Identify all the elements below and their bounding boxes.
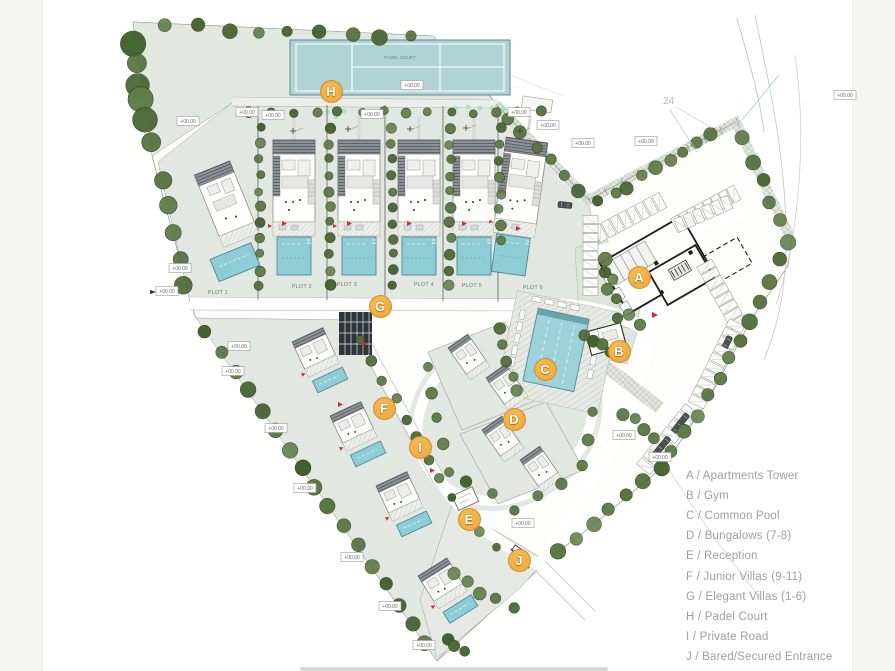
elevation-text: +00.00 [239,110,255,116]
tree-icon [325,123,336,134]
tree-icon [325,172,333,180]
tree-icon [324,249,333,258]
tree-icon [389,249,397,257]
parking-stall [583,288,598,296]
plot-label: PLOT 6 [523,285,543,291]
tree-icon [444,280,454,290]
tree-icon [447,155,456,164]
tree-icon [691,137,702,148]
tree-icon [432,413,442,423]
tree-icon [612,313,622,323]
tree-icon [735,131,749,145]
elevation-label: +00.00 [413,641,435,650]
tree-icon [620,489,632,501]
tree-icon [216,346,228,358]
tree-icon [601,283,613,295]
tree-icon [198,325,211,338]
elevation-text: +00.00 [225,369,241,375]
tree-icon [240,382,256,398]
tree-icon [494,204,503,213]
tree-icon [559,170,569,180]
tree-icon [444,266,454,276]
tree-icon [648,433,659,444]
legend-item-E: E / Reception [686,546,891,566]
tree-icon [191,18,204,31]
elevation-label: +00.00 [341,553,363,562]
tree-icon [734,335,747,348]
elevation-text: +00.00 [837,93,853,99]
legend-item-D: D / Bungalows (7-8) [686,526,891,546]
tree-icon [255,201,265,211]
tree-icon [155,172,172,189]
tree-icon [142,133,161,152]
legend-item-J: J / Bared/Secured Entrance [686,647,891,667]
tree-icon [704,128,717,141]
entrance-exit-road [540,566,590,616]
tree-icon [495,140,503,148]
tree-icon [337,519,351,533]
elevation-label: +00.00 [222,367,244,376]
map-marker-F: F [373,397,396,420]
elevation-text: +00.00 [268,426,284,432]
tree-icon [587,517,602,532]
tree-icon [623,309,635,321]
tree-icon [445,141,454,150]
tree-icon [133,107,158,132]
tree-icon [714,372,727,385]
plot-label: PLOT 1 [208,290,228,296]
tree-icon [536,106,546,116]
tree-icon [445,468,454,477]
tree-icon [665,154,677,166]
elevation-text: +00.00 [404,83,420,89]
tree-icon [445,202,456,213]
site-plan-page: PADEL COURT [0,0,895,671]
tree-icon [556,478,568,490]
tree-icon [497,340,507,350]
tree-icon [571,184,585,198]
tree-icon [510,506,520,516]
elevation-label: +00.00 [635,137,657,146]
tree-icon [282,443,298,459]
parking-stall [583,243,598,251]
tree-icon [346,28,360,42]
tree-icon [255,404,270,419]
tree-icon [423,362,432,371]
tree-icon [282,26,292,36]
tree-icon [496,220,507,231]
tree-icon [577,460,588,471]
map-marker-B: B [608,340,631,363]
elevation-label: +00.00 [537,121,559,130]
map-marker-E: E [458,508,481,531]
tree-icon [490,593,501,604]
tree-icon [774,214,787,227]
tree-icon [387,171,396,180]
tree-icon [742,314,758,330]
elevation-label: +00.00 [228,342,250,351]
tree-icon [617,408,629,420]
leader-line [676,107,712,128]
elevation-text: +00.00 [231,344,247,350]
tree-icon [444,217,455,228]
tree-icon [511,385,523,397]
tree-icon [401,108,411,118]
tree-icon [582,434,594,446]
tree-icon [257,123,265,131]
tree-icon [426,387,438,399]
tree-icon [295,460,311,476]
tree-icon [380,577,393,590]
legend-item-H: H / Padel Court [686,607,891,627]
elevation-label: +00.00 [379,602,401,611]
tree-icon [160,196,178,214]
tree-icon [773,252,787,266]
tree-icon [448,493,456,501]
plot-label: PLOT 5 [462,283,482,289]
legend-item-C: C / Common Pool [686,506,891,526]
tree-icon [158,19,171,32]
elevation-text: +00.00 [172,266,188,272]
tree-icon [423,108,431,116]
tree-icon [388,154,397,163]
tree-icon [365,560,379,574]
tree-icon [630,413,640,423]
tree-icon [509,603,520,614]
tree-icon [753,295,767,309]
tree-icon [678,147,688,157]
map-marker-D: D [503,408,526,431]
tree-icon [320,498,335,513]
tree-icon [325,154,334,163]
tree-icon [488,489,498,499]
tree-icon [533,491,543,501]
tree-icon [608,274,618,284]
tree-icon [255,233,265,243]
elevation-label: +00.00 [156,287,178,296]
tree-icon [389,188,397,196]
tree-icon [570,533,583,546]
tree-icon [757,173,770,186]
tree-icon [634,319,645,330]
tree-icon [445,124,455,134]
tree-icon [546,154,556,164]
legend-item-F: F / Junior Villas (9-11) [686,566,891,586]
tree-icon [654,461,669,476]
tree-icon [598,252,612,266]
tree-icon [437,438,449,450]
tree-icon [386,139,395,148]
tree-icon [497,190,506,199]
elevation-label: +00.00 [649,453,671,462]
elevation-text: +00.00 [364,112,380,118]
map-marker-G: G [369,295,392,318]
parking-stall [583,234,598,242]
elevation-text: +00.00 [382,604,398,610]
tree-icon [388,265,398,275]
tree-icon [255,188,263,196]
tree-icon [620,182,633,195]
elevation-text: +00.00 [575,141,591,147]
plot-label: PLOT 4 [414,282,434,288]
tree-icon [255,218,265,228]
tree-icon [165,225,181,241]
elevation-label: +00.00 [177,117,199,126]
legend-item-B: B / Gym [686,486,891,506]
map-marker-I: I [409,436,432,459]
elevation-label: +00.00 [401,81,423,90]
tree-icon [723,351,735,363]
tree-icon [352,538,366,552]
elevation-label: +00.00 [236,108,258,117]
tree-icon [460,476,472,488]
elevation-text: +00.00 [511,110,527,116]
elevation-label: +00.00 [294,484,316,493]
tree-icon [446,172,455,181]
tree-icon [326,267,335,276]
tree-icon [377,376,387,386]
tree-icon [493,543,501,551]
parking-stall [583,225,598,233]
tree-icon [332,107,342,117]
tree-icon [312,25,326,39]
legend-item-A: A / Apartments Tower [686,466,891,486]
parked-car [558,201,572,208]
tree-icon [691,410,704,423]
tree-icon [448,567,460,579]
bench-mark [150,290,156,294]
tree-icon [763,196,776,209]
tree-icon [388,281,397,290]
tree-icon [325,279,336,290]
tree-icon [223,24,238,39]
tree-icon [780,235,796,251]
tree-icon [492,108,502,118]
elevation-label: +00.00 [834,91,856,100]
elevation-text: +00.00 [159,289,175,295]
elevation-text: +00.00 [515,521,531,527]
tree-icon [494,172,504,182]
elevation-text: +00.00 [344,555,360,561]
tree-icon [366,355,377,366]
legend-item-G: G / Elegant Villas (1-6) [686,587,891,607]
tree-icon [388,203,397,212]
plot-label: PLOT 3 [337,282,357,288]
tree-icon [649,161,663,175]
tree-icon [254,155,263,164]
elevation-text: +00.00 [265,113,281,119]
tree-icon [254,27,265,38]
tree-icon [255,266,265,276]
parking-stall [583,252,598,260]
legend: A / Apartments TowerB / GymC / Common Po… [686,466,891,667]
tree-icon [532,143,542,153]
elevation-label: +00.00 [169,264,191,273]
tree-icon [448,640,459,651]
tree-icon [550,544,566,560]
tree-icon [746,155,761,170]
tree-icon [313,108,322,117]
plot-label: PLOT 2 [292,284,312,290]
tree-icon [290,109,299,118]
tree-icon [469,110,477,118]
tree-icon [702,389,714,401]
map-marker-J: J [508,549,531,572]
tree-icon [592,196,602,206]
parking-stall [583,216,598,224]
legend-item-I: I / Private Road [686,627,891,647]
tree-icon [638,423,650,435]
elevation-label: +00.00 [265,424,287,433]
elevation-text: +00.00 [180,119,196,125]
map-marker-H: H [320,80,343,103]
elevation-label: +00.00 [361,110,383,119]
tree-icon [406,31,416,41]
tree-icon [254,281,263,290]
map-marker-C: C [534,358,557,381]
tree-icon [372,30,388,46]
tree-icon [127,54,146,73]
elevation-label: +00.00 [508,108,530,117]
tree-icon [462,576,473,587]
tree-icon [257,171,265,179]
tree-icon [406,617,420,631]
tree-icon [255,138,265,148]
contour-number: 24 [663,96,675,107]
tree-icon [324,187,334,197]
tree-icon [448,108,456,116]
elevation-text: +00.00 [652,455,668,461]
tree-icon [256,249,264,257]
tree-icon [509,372,518,381]
tree-icon [602,503,614,515]
tree-icon [325,233,335,243]
tree-icon [446,187,454,195]
elevation-text: +00.00 [416,643,432,649]
tree-icon [635,474,650,489]
parking-stall [583,261,598,269]
elevation-text: +00.00 [540,123,556,129]
padel-court-label: PADEL COURT [384,55,416,60]
elevation-text: +00.00 [297,486,313,492]
tree-icon [611,294,621,304]
elevation-label: +00.00 [512,519,534,528]
horizontal-scrollbar[interactable] [300,667,608,671]
tree-icon [324,140,334,150]
tree-icon [326,202,336,212]
tree-icon [497,236,506,245]
tree-icon [388,220,397,229]
tree-icon [326,217,334,225]
tree-icon [386,123,396,133]
elevation-label: +00.00 [262,111,284,120]
tree-icon [388,235,398,245]
elevation-text: +00.00 [616,433,632,439]
tree-icon [402,415,412,425]
elevation-label: +00.00 [613,431,635,440]
tree-icon [120,31,145,56]
elevation-label: +00.00 [572,139,594,148]
tree-icon [447,233,456,242]
parking-stall [583,279,598,287]
tree-icon [460,646,470,656]
tree-icon [762,275,777,290]
tree-icon [588,407,598,417]
tree-icon [444,249,455,260]
tree-icon [473,587,486,600]
parking-stall [583,270,598,278]
elevation-text: +00.00 [638,139,654,145]
tree-icon [677,424,691,438]
map-marker-A: A [628,266,651,289]
tree-icon [494,156,503,165]
tree-icon [434,473,444,483]
trellis-grid [339,312,372,355]
tree-icon [494,323,506,335]
tree-icon [501,356,512,367]
